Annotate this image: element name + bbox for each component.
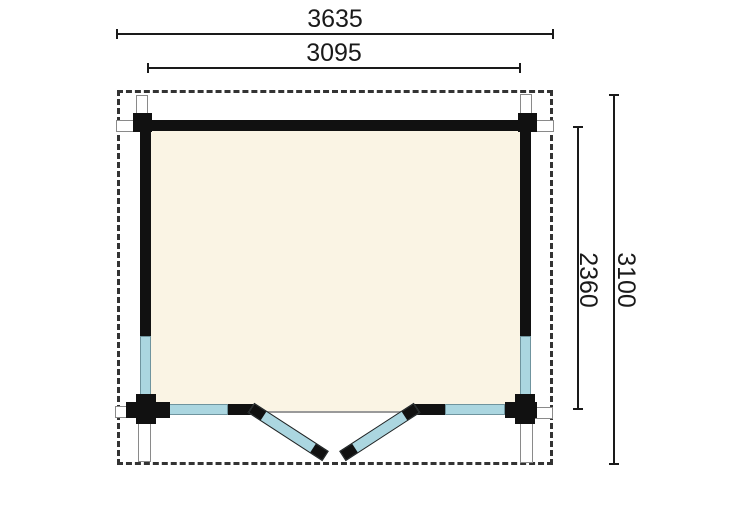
dimension-tick <box>573 408 583 410</box>
door-opening-exterior <box>253 413 413 416</box>
dimension-tick <box>573 126 583 128</box>
window-left-wall <box>140 336 151 396</box>
dimension-tick <box>116 29 118 39</box>
log-end-bottom-right-down <box>520 423 533 463</box>
window-front-left <box>169 404 228 415</box>
exterior-walls <box>140 120 531 415</box>
corner-block-top-left <box>133 113 152 132</box>
window-front-right <box>445 404 505 415</box>
dimension-tick <box>609 94 619 96</box>
dimension-tick <box>552 29 554 39</box>
dimension-label-right-inner: 2360 <box>575 220 601 340</box>
dimension-tick <box>609 463 619 465</box>
dimension-line-top-outer <box>117 33 553 35</box>
dimension-label-top-inner: 3095 <box>148 40 520 66</box>
floor-plan: 3635 3095 2360 3100 <box>0 0 734 505</box>
corner-block-bottom-right-v <box>515 394 535 424</box>
log-end-bottom-left-down <box>138 423 151 462</box>
window-right-wall <box>520 336 531 396</box>
corner-block-top-right <box>518 113 537 132</box>
dimension-label-top-outer: 3635 <box>117 6 553 32</box>
door-opening-interior <box>253 404 413 411</box>
corner-block-bottom-left-v <box>136 394 156 424</box>
dimension-tick <box>519 63 521 73</box>
dimension-tick <box>147 63 149 73</box>
dimension-label-right-outer: 3100 <box>613 220 639 340</box>
dimension-line-top-inner <box>148 67 520 69</box>
